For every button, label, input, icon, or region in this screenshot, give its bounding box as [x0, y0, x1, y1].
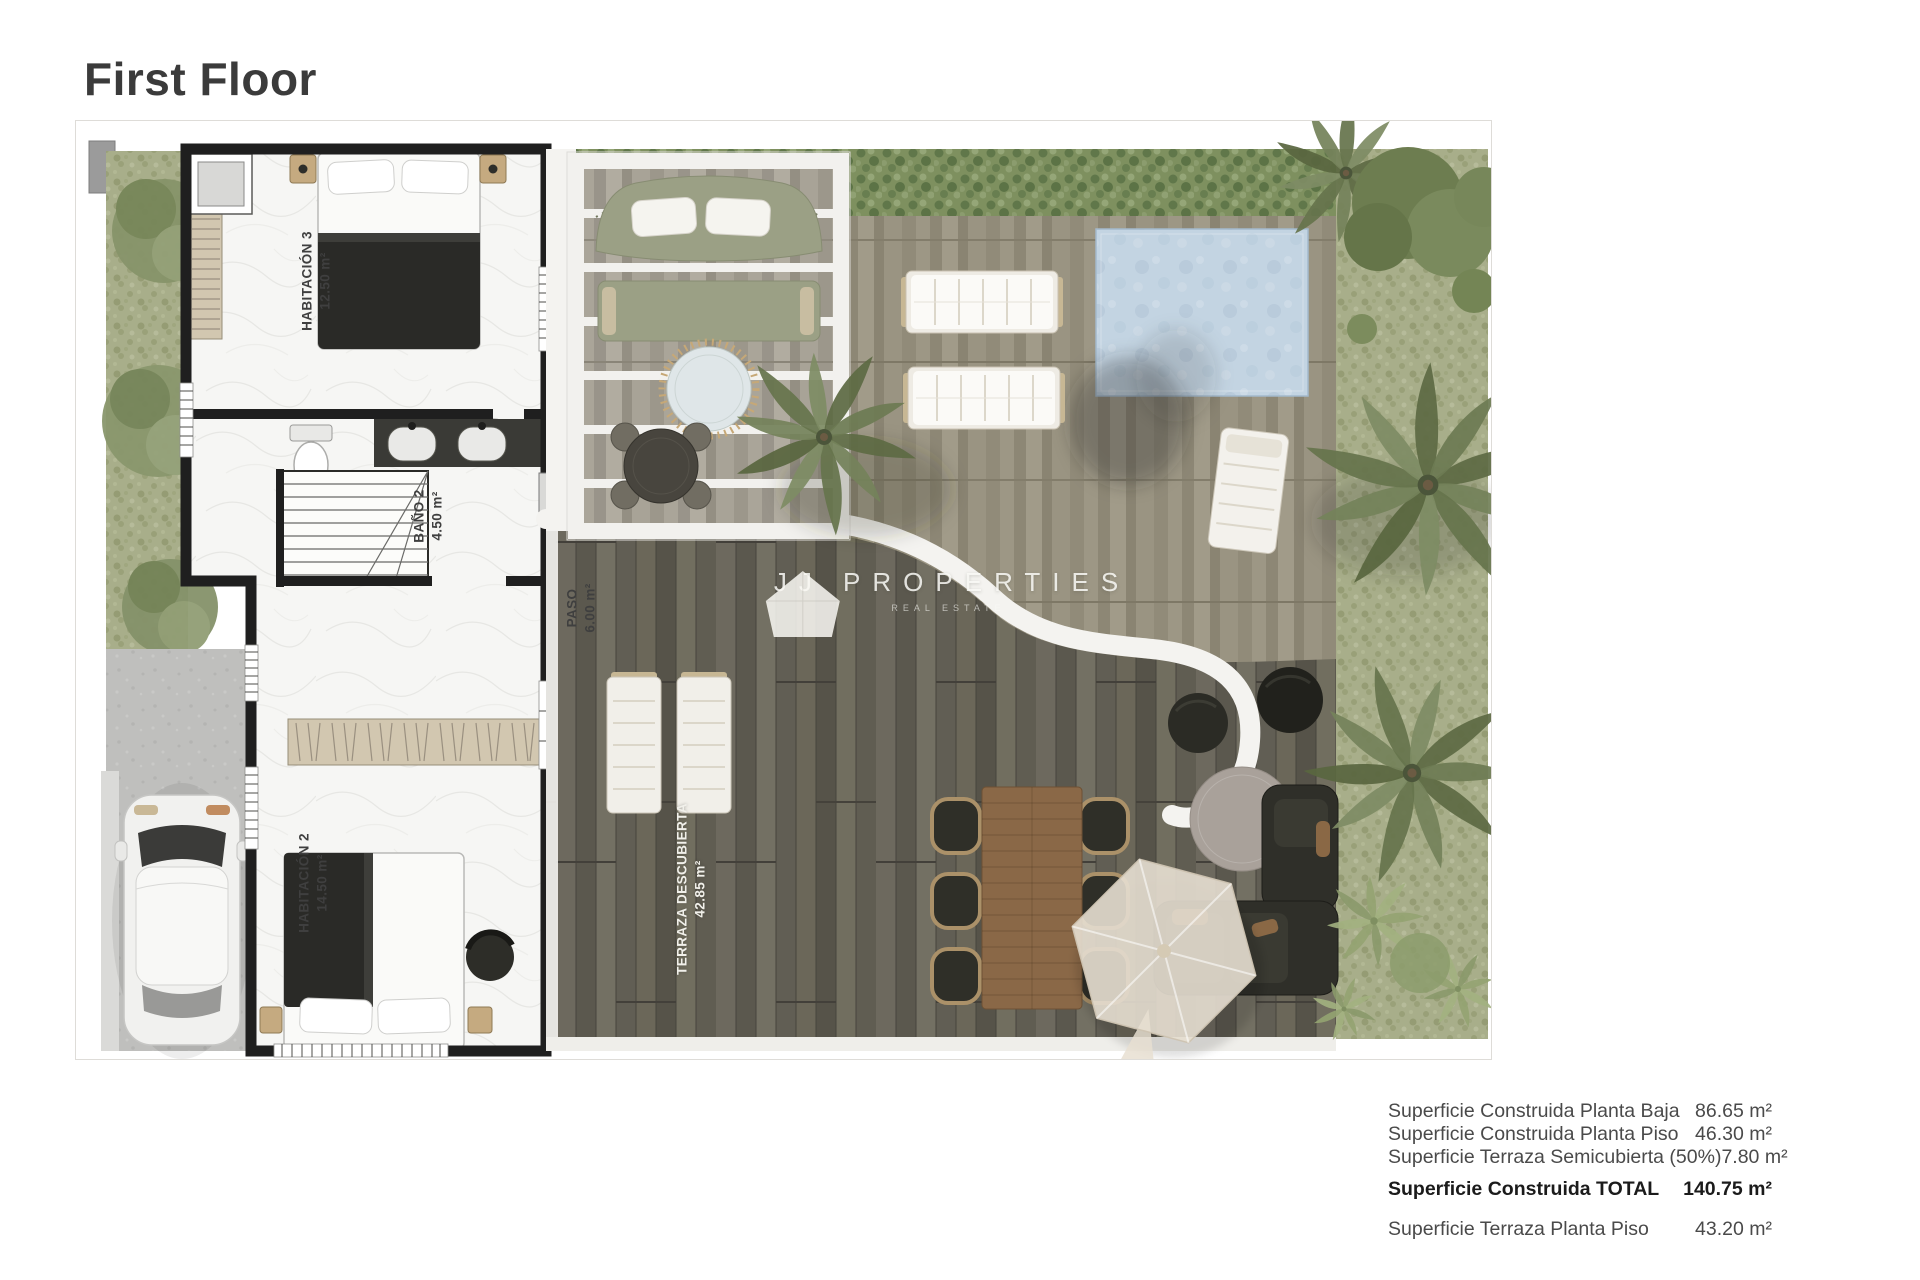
- room-name: TERRAZA DESCUBIERTA: [673, 803, 691, 975]
- room-label-bano-2: BAÑO 2 4.50 m²: [410, 489, 445, 542]
- bistro-set: [611, 423, 711, 509]
- room-name: BAÑO 2: [410, 489, 428, 542]
- room-label-paso: PASO 6.00 m²: [563, 583, 598, 632]
- room-area: 42.85 m²: [691, 803, 709, 975]
- nightstand: [468, 1007, 492, 1033]
- room-area: 12.50 m²: [316, 231, 334, 331]
- table-row: Superficie Terraza Semicubierta (50%) 7.…: [1388, 1146, 1772, 1169]
- room-label-terraza-descubierta: TERRAZA DESCUBIERTA 42.85 m²: [673, 803, 708, 975]
- room-area: 4.50 m²: [428, 489, 446, 542]
- wardrobe: [288, 719, 542, 765]
- floor-plan: HABITACIÓN 3 12.50 m² BAÑO 2 4.50 m² PAS…: [75, 120, 1492, 1060]
- wardrobe: [190, 201, 222, 339]
- sun-lounger: [607, 672, 661, 813]
- daybed: [598, 281, 820, 341]
- table-row: Superficie Construida Planta Piso 46.30 …: [1388, 1123, 1772, 1146]
- sun-lounger: [677, 672, 731, 813]
- table-row-total: Superficie Construida TOTAL 140.75 m²: [1388, 1178, 1772, 1201]
- nightstand: [260, 1007, 282, 1033]
- outdoor-sofa: [596, 176, 822, 261]
- sun-lounger: [1207, 427, 1289, 554]
- car: [112, 783, 252, 1059]
- table-row: Superficie Construida Planta Baja 86.65 …: [1388, 1100, 1772, 1123]
- staircase: [276, 469, 428, 587]
- armchair: [466, 932, 514, 981]
- double-sun-lounger: [901, 271, 1063, 333]
- room-name: HABITACIÓN 3: [298, 231, 316, 331]
- window: [245, 645, 258, 701]
- room-area: 14.50 m²: [313, 833, 331, 933]
- window: [274, 1044, 448, 1057]
- room-label-habitacion-2: HABITACIÓN 2 14.50 m²: [295, 833, 330, 933]
- double-sun-lounger: [903, 367, 1065, 429]
- page-title: First Floor: [84, 52, 317, 106]
- page: First Floor: [0, 0, 1920, 1280]
- watermark-logo-icon: [762, 567, 844, 641]
- room-name: PASO: [563, 583, 581, 632]
- window: [245, 767, 258, 849]
- vanity-double-sink: [374, 419, 546, 467]
- room-label-habitacion-3: HABITACIÓN 3 12.50 m²: [298, 231, 333, 331]
- room-name: HABITACIÓN 2: [295, 833, 313, 933]
- bed-habitacion-3: [318, 153, 480, 349]
- watermark: JJ PROPERTIES REAL ESTATE: [762, 567, 1130, 613]
- area-summary-table: Superficie Construida Planta Baja 86.65 …: [1388, 1100, 1772, 1241]
- room-area: 6.00 m²: [581, 583, 599, 632]
- watermark-tagline: REAL ESTATE: [886, 603, 1005, 613]
- window: [180, 383, 193, 457]
- table-row: Superficie Terraza Planta Piso 43.20 m²: [1388, 1218, 1772, 1241]
